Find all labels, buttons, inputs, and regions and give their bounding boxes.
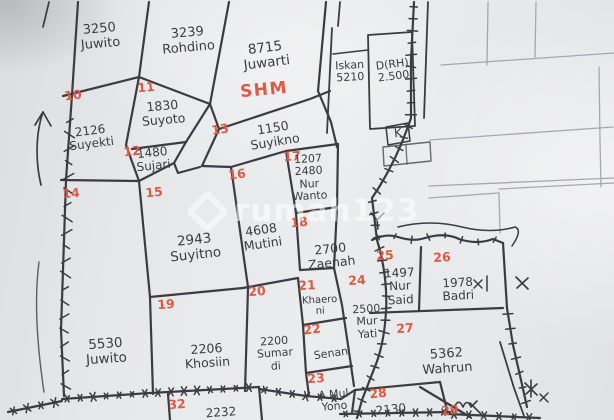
parcel-p24-number: 24 — [348, 272, 366, 288]
parcel-drh-label: D(RH)2.500 — [375, 57, 411, 85]
parcel-p10-label: 2126Suyekti — [67, 122, 115, 154]
parcel-p19-number: 19 — [157, 296, 175, 312]
parcel-p27-number: 27 — [396, 320, 414, 336]
sketch-map-canvas: 3250Juwito3239Rohdino8715JuwartiSHMIskan… — [0, 0, 614, 420]
parcel-iskan-label: Iskan5210 — [335, 59, 365, 85]
parcel-p18-label: 2700Zaenah — [306, 240, 356, 273]
parcel-juwarti-badge: SHM — [239, 78, 288, 102]
hatch-ticks — [65, 384, 251, 402]
north-arrow-icon — [35, 2, 51, 392]
parcel-p22-number: 22 — [302, 320, 321, 337]
parcel-top-juwito-label: 3250Juwito — [79, 21, 121, 53]
parcel-p23-label: A.MulYono — [318, 387, 350, 414]
parcel-p23-number: 23 — [307, 370, 326, 386]
parcel-rohdino-label: 3239Rohdino — [160, 24, 215, 58]
parcel-p14-number: 14 — [62, 185, 80, 201]
parcel-p32-number: 32 — [168, 396, 186, 412]
parcel-p21-label: Khaeroni — [302, 294, 338, 318]
hatch-ticks — [503, 314, 530, 404]
parcel-p28-number: 28 — [369, 385, 388, 402]
parcel-p20-label: 2200Sumardi — [256, 334, 294, 373]
parcel-p32-label: 2232 — [205, 405, 236, 420]
pencil-parcel-grid — [429, 2, 614, 233]
parcel-p25-label: 1497NurSaid — [384, 266, 417, 308]
parcel-p12-label: 1480Sujari — [135, 145, 172, 175]
parcel-p20-number: 20 — [248, 283, 266, 299]
parcel-p19-label: 2206Khosiin — [184, 340, 231, 371]
parcel-p15-number: 15 — [145, 184, 164, 201]
parcel-p26-label: 1978Badri — [442, 276, 475, 304]
parcel-p16-number: 16 — [227, 165, 246, 182]
parcel-p29-number: 29 — [441, 402, 460, 418]
parcel-p25-number: 25 — [376, 247, 394, 263]
parcel-p11-label: 1830Suyoto — [140, 97, 186, 129]
parcel-p18-number: 18 — [290, 214, 309, 231]
parcel-juwarti-label: 8715Juwarti — [241, 38, 291, 74]
parcel-p11-number: 11 — [137, 79, 156, 95]
parcel-p26-number: 26 — [433, 249, 451, 265]
parcel-p27-label: 5362Wahrun — [421, 346, 473, 379]
parcel-p16-label: 4608Mutini — [241, 220, 283, 253]
parcel-p15-label: 2943Suyitno — [168, 230, 222, 265]
parcel-p21-number: 21 — [298, 277, 316, 293]
parcel-p17-label: 12072480NurWanto — [290, 152, 327, 203]
k-annotation: K — [393, 126, 402, 141]
parcel-p14-label: 5530Juwito — [85, 336, 128, 369]
parcel-p10-number: 10 — [63, 86, 82, 103]
parcel-p13-number: 13 — [210, 120, 230, 138]
parcel-p24-label: 2500MurYati — [352, 303, 382, 341]
